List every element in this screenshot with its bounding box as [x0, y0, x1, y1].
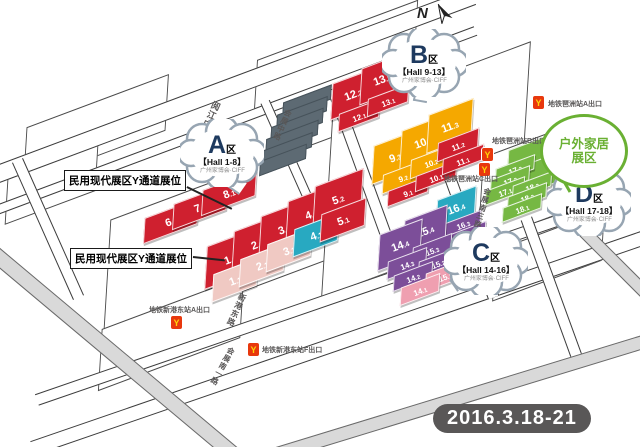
zone-bubble-text: B区【Hall 9-13】广州家博会·CIFF — [382, 29, 466, 97]
date-badge: 2016.3.18-21 — [433, 404, 591, 433]
metro-exit-label: 地铁琶洲站C出口 — [444, 174, 498, 184]
metro-exit-label: 地铁琶洲站B出口 — [492, 136, 546, 146]
exhibition-map: 6.17.18.11.22.23.24.25.21.12.13.14.15.11… — [0, 0, 640, 447]
metro-logo-icon: Y — [171, 316, 182, 329]
metro-exit-label: 地铁琶洲站A出口 — [548, 99, 602, 109]
compass-arrow-icon — [428, 0, 458, 28]
metro-exit-label: 地铁新港东站F出口 — [262, 345, 322, 355]
compass: N — [417, 2, 454, 24]
compass-n-label: N — [417, 5, 428, 22]
outdoor-zone-bubble: 户外家居展区 — [540, 114, 628, 188]
metro-logo-icon: Y — [533, 96, 544, 109]
zone-bubble-text: A区【Hall 1-8】广州家博会·CIFF — [180, 119, 264, 187]
zone-bubble-C: C区【Hall 14-16】广州家博会·CIFF — [444, 227, 528, 295]
zone-bubble-B: B区【Hall 9-13】广州家博会·CIFF — [382, 29, 466, 97]
zone-bubble-text: C区【Hall 14-16】广州家博会·CIFF — [444, 227, 528, 295]
zone-bubble-A: A区【Hall 1-8】广州家博会·CIFF — [180, 119, 264, 187]
booth-note-box: 民用现代展区Y通道展位 — [70, 248, 192, 269]
metro-logo-icon: Y — [482, 148, 493, 161]
booth-note-box: 民用现代展区Y通道展位 — [64, 170, 186, 191]
metro-logo-icon: Y — [248, 343, 259, 356]
metro-exit-label: 地铁新港东站A出口 — [149, 305, 210, 315]
